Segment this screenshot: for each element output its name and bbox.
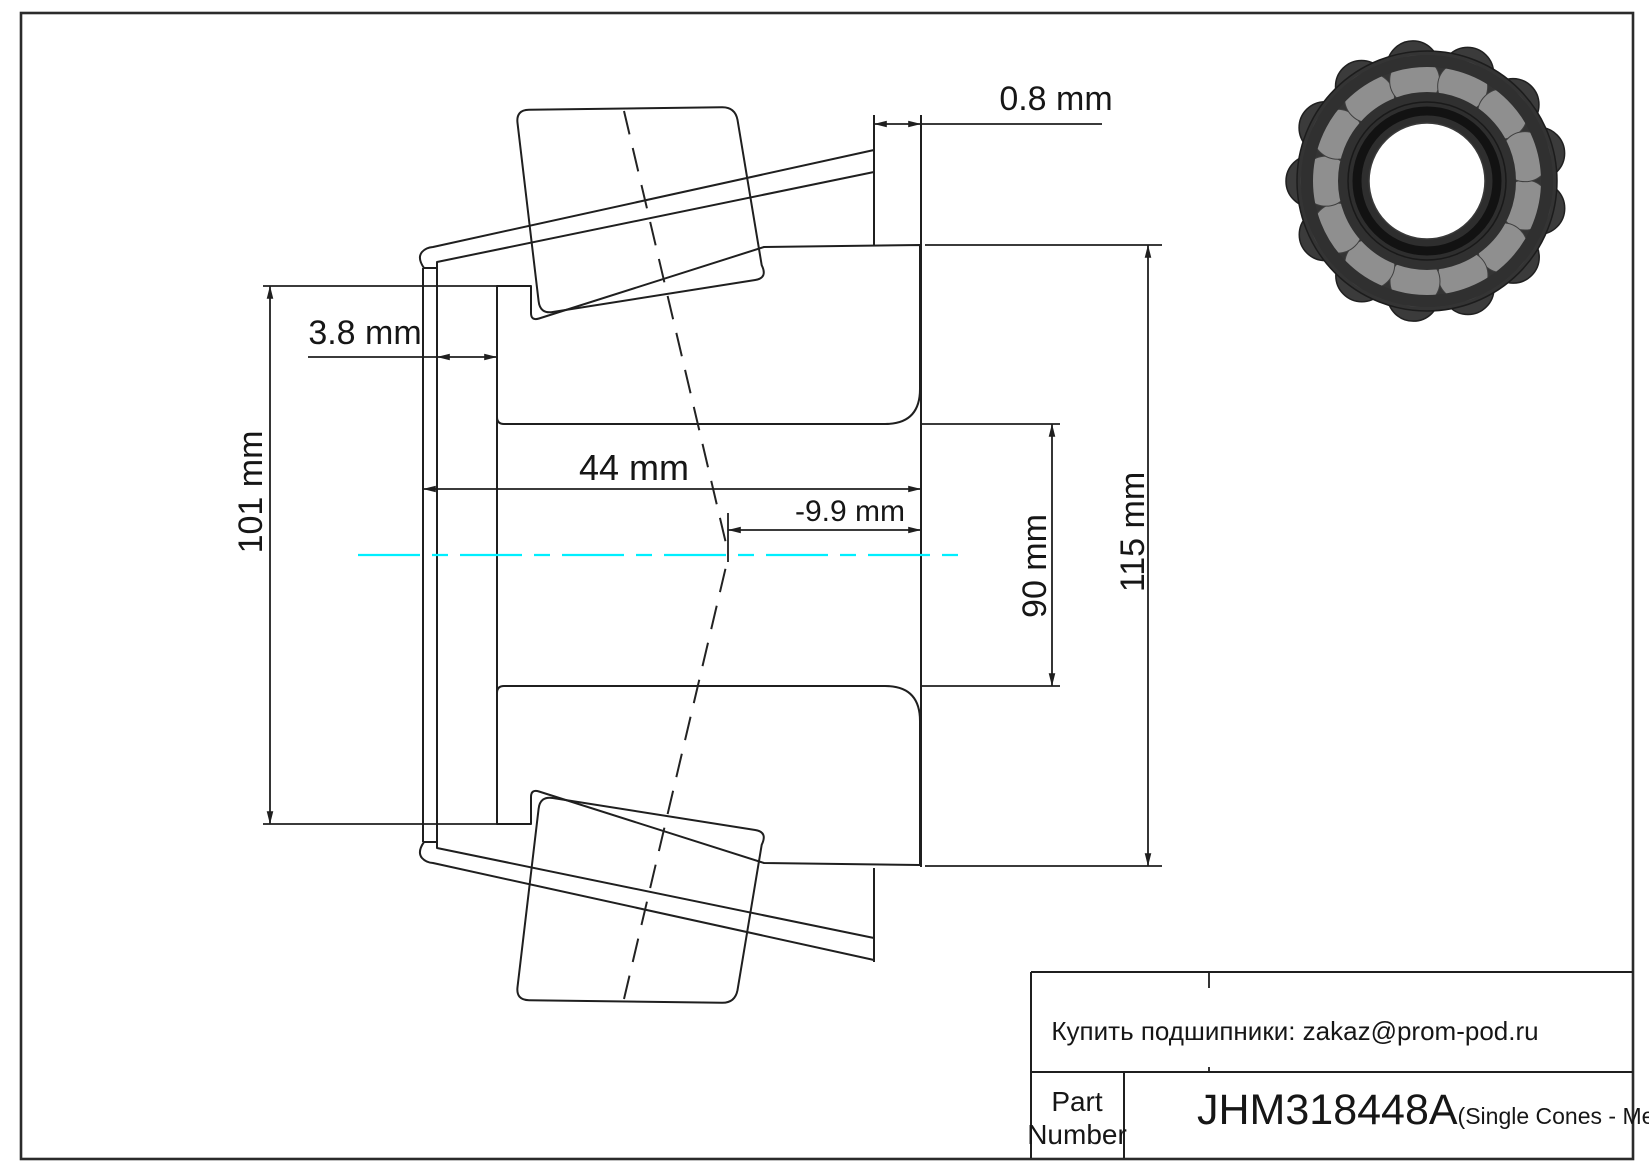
drawing-page: 0.8 mm 3.8 mm 101 mm 44 mm -9.9 mm 90 mm… (0, 0, 1649, 1167)
dim-label-0-8: 0.8 mm (999, 80, 1112, 118)
title-block: Купить подшипники: zakaz@prom-pod.ru Par… (1027, 972, 1649, 1158)
part-label-line2: Number (1027, 1119, 1127, 1150)
contact-text: Купить подшипники: zakaz@prom-pod.ru (1051, 1016, 1538, 1046)
cage-strip-bottom (420, 842, 874, 960)
dim-label-115: 115 mm (1114, 472, 1152, 592)
roller-axis-bottom (624, 558, 728, 999)
dim-label-90: 90 mm (1016, 514, 1054, 618)
cage-strip-top (420, 150, 874, 268)
part-series-suffix: (Single Cones - Metric) (1458, 1103, 1649, 1129)
dimension-annotations: 0.8 mm 3.8 mm 101 mm 44 mm -9.9 mm 90 mm… (232, 80, 1162, 866)
roller-bottom (517, 798, 763, 1003)
dim-label-9-9: -9.9 mm (795, 495, 905, 528)
drawing-canvas: 0.8 mm 3.8 mm 101 mm 44 mm -9.9 mm 90 mm… (0, 0, 1649, 1167)
dim-label-44: 44 mm (579, 447, 689, 488)
bearing-photo-shape (1369, 123, 1485, 239)
cone-section-top (497, 245, 920, 424)
section-view (358, 107, 963, 1003)
roller-top (517, 107, 763, 312)
dim-label-3-8: 3.8 mm (308, 314, 421, 352)
cone-section-bottom (497, 686, 920, 865)
bearing-photo (1286, 41, 1565, 321)
dim-label-101: 101 mm (232, 431, 270, 554)
part-number-value: JHM318448A (1197, 1086, 1458, 1134)
part-number-text: JHM318448A(Single Cones - Metric) (1197, 1086, 1649, 1134)
part-label-line1: Part (1051, 1086, 1103, 1117)
